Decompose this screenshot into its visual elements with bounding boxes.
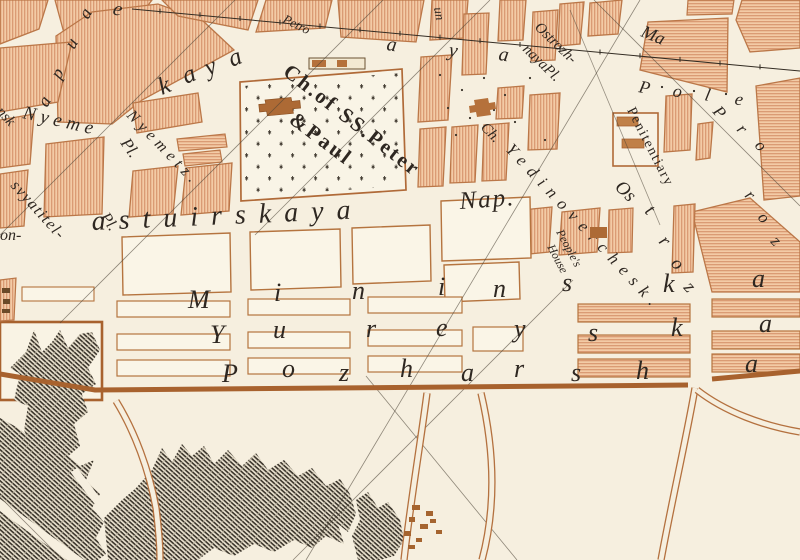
svg-text:u: u [273, 315, 286, 344]
svg-text:on-: on- [0, 227, 21, 244]
svg-text:M: M [187, 285, 211, 314]
svg-text:i: i [274, 278, 281, 307]
svg-text:a: a [745, 349, 758, 378]
svg-text:i: i [438, 272, 445, 301]
svg-text:a: a [461, 358, 474, 387]
svg-text:o: o [282, 354, 295, 383]
svg-text:P: P [221, 359, 238, 388]
svg-text:Nap.: Nap. [458, 184, 517, 215]
svg-text:h: h [400, 354, 413, 383]
svg-text:s: s [571, 358, 581, 387]
svg-text:k: k [671, 313, 683, 342]
svg-text:h: h [636, 356, 649, 385]
svg-text:r: r [514, 354, 525, 383]
svg-text:a: a [759, 309, 772, 338]
svg-text:r: r [366, 314, 377, 343]
svg-text:z: z [338, 358, 349, 387]
svg-text:un: un [431, 6, 448, 21]
svg-text:y: y [511, 314, 526, 343]
svg-text:s: s [588, 318, 598, 347]
svg-text:e: e [436, 313, 448, 342]
svg-text:n: n [352, 276, 365, 305]
svg-text:a: a [752, 264, 765, 293]
svg-text:n: n [493, 274, 506, 303]
svg-text:Y: Y [210, 320, 227, 349]
